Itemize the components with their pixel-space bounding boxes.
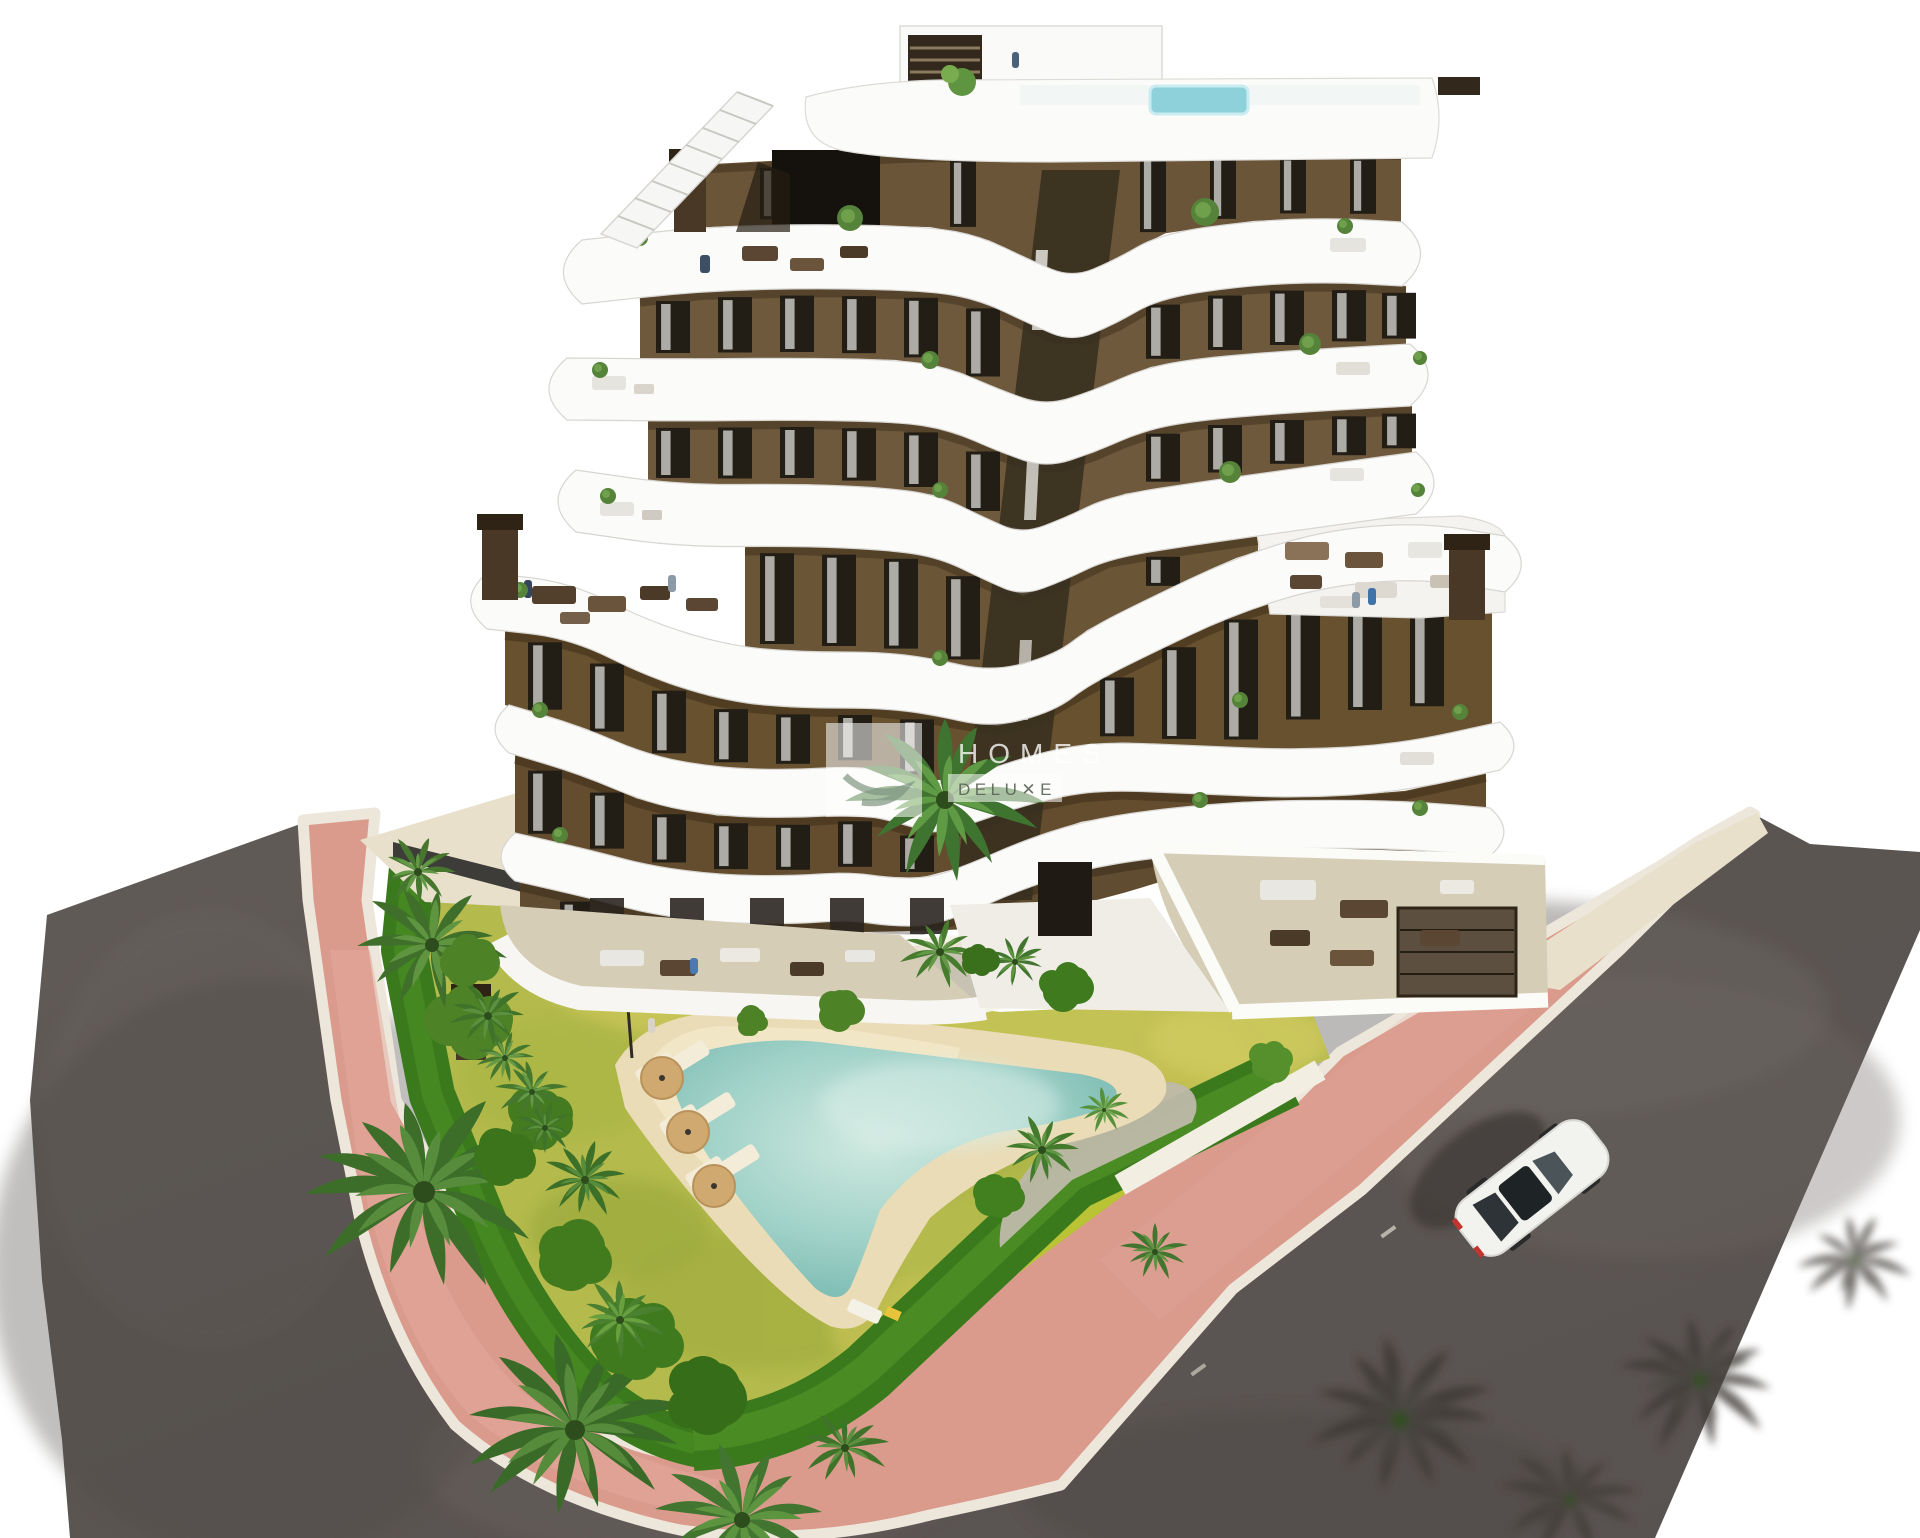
svg-text:HOMES: HOMES xyxy=(958,738,1111,769)
svg-text:DELU✕E: DELU✕E xyxy=(958,780,1056,799)
